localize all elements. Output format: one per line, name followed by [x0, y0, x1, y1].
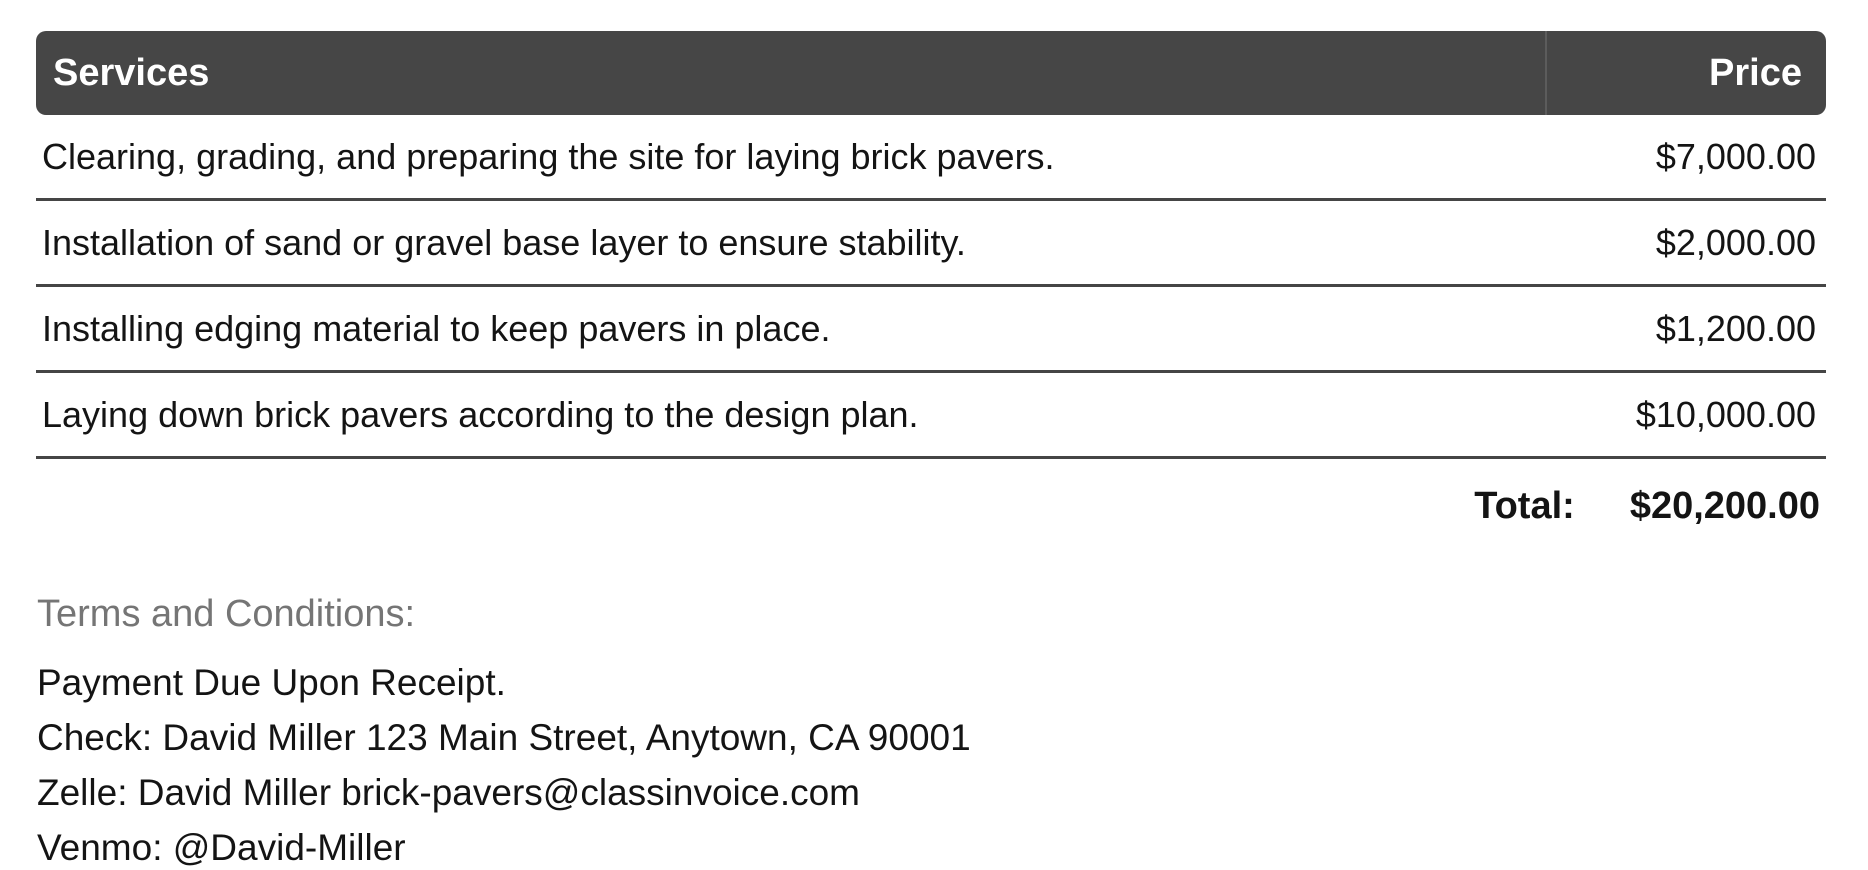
service-description: Laying down brick pavers according to th…	[36, 394, 1545, 436]
service-description: Clearing, grading, and preparing the sit…	[36, 136, 1545, 178]
terms-line-venmo: Venmo: @David-Miller	[37, 820, 1826, 870]
total-row: Total: $20,200.00	[36, 459, 1826, 553]
service-price: $10,000.00	[1545, 394, 1826, 436]
total-value: $20,200.00	[1630, 485, 1826, 528]
service-description: Installing edging material to keep paver…	[36, 308, 1545, 350]
table-row: Installing edging material to keep paver…	[36, 287, 1826, 373]
table-header-row: Services Price	[36, 31, 1826, 115]
table-row: Clearing, grading, and preparing the sit…	[36, 115, 1826, 201]
total-label: Total:	[1474, 485, 1575, 528]
table-row: Laying down brick pavers according to th…	[36, 373, 1826, 459]
services-price-table: Services Price Clearing, grading, and pr…	[36, 31, 1826, 553]
invoice-page: Services Price Clearing, grading, and pr…	[0, 0, 1826, 870]
terms-line-check: Check: David Miller 123 Main Street, Any…	[37, 710, 1826, 765]
services-column-header: Services	[36, 31, 1545, 115]
service-price: $2,000.00	[1545, 222, 1826, 264]
price-column-header: Price	[1545, 31, 1826, 115]
terms-and-conditions-section: Terms and Conditions: Payment Due Upon R…	[36, 587, 1826, 870]
service-description: Installation of sand or gravel base laye…	[36, 222, 1545, 264]
terms-heading: Terms and Conditions:	[37, 587, 1826, 641]
table-row: Installation of sand or gravel base laye…	[36, 201, 1826, 287]
terms-line-zelle: Zelle: David Miller brick-pavers@classin…	[37, 765, 1826, 820]
terms-line-payment: Payment Due Upon Receipt.	[37, 655, 1826, 710]
service-price: $1,200.00	[1545, 308, 1826, 350]
service-price: $7,000.00	[1545, 136, 1826, 178]
